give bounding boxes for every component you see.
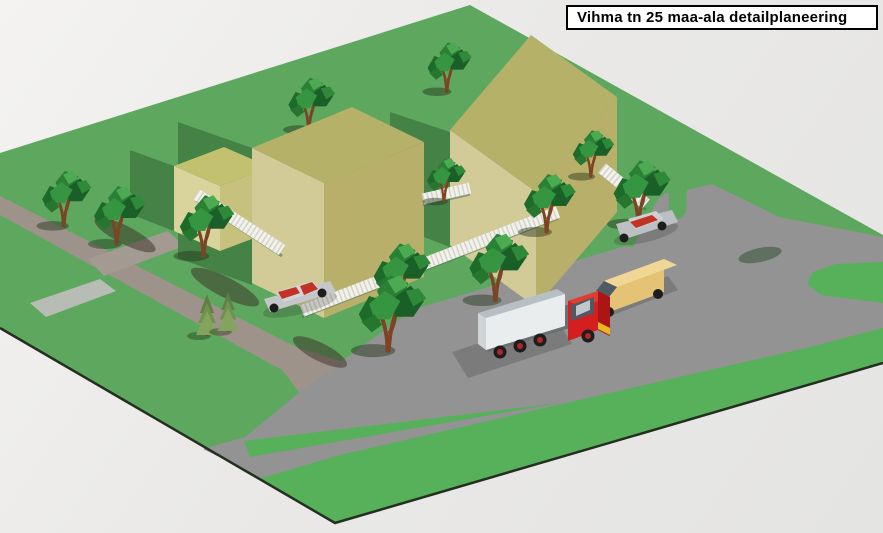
scene-canvas — [0, 0, 883, 533]
page-title: Vihma tn 25 maa-ala detailplaneering — [577, 9, 847, 26]
site-plan-render: Vihma tn 25 maa-ala detailplaneering — [0, 0, 883, 533]
title-box: Vihma tn 25 maa-ala detailplaneering — [566, 5, 878, 30]
